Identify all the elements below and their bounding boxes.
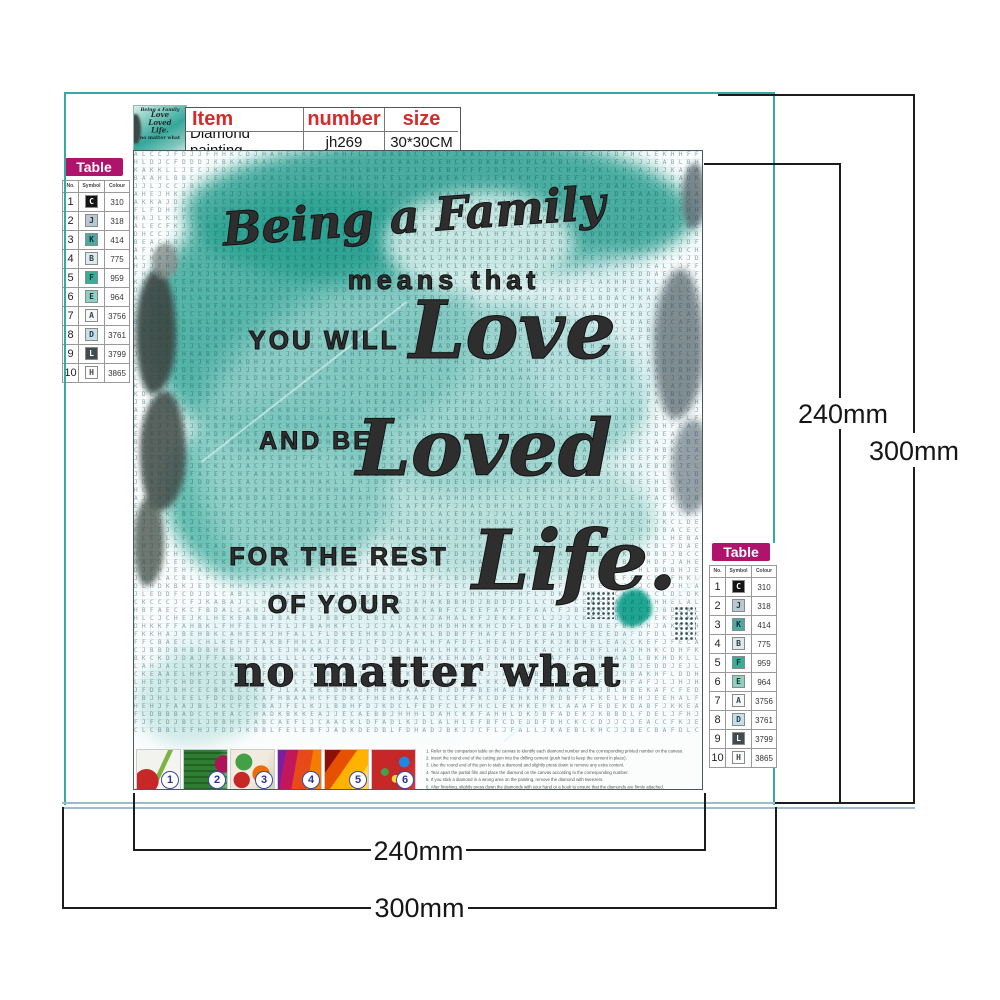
dim-label-inner-width: 240mm (371, 836, 466, 866)
quote-line-3: YOU WILL (246, 325, 402, 356)
canvas-photo: ALCCJFDJJFHHKCDJHAHELKBFLHHFLLDDKDBCECLF… (133, 150, 703, 790)
dim-line-inner-height-a (839, 163, 841, 398)
color-table-row: 8D3761 (710, 711, 777, 730)
step-thumbnail-6: 6 (371, 749, 416, 790)
color-table-row: 5F959 (710, 654, 777, 673)
color-table-row: 1C310 (710, 578, 777, 597)
symbol-chip: F (732, 656, 745, 669)
step-number-badge: 4 (302, 771, 320, 789)
color-table-row: 4B775 (710, 635, 777, 654)
instruction-line: 1. Refer to the comparison table on the … (426, 748, 703, 755)
symbol-chip: J (732, 599, 745, 612)
instruction-line: 2. Insert the round end of the cutting p… (426, 755, 703, 762)
quote-line-6: Loved (356, 403, 612, 494)
dim-line-outer-height-b (913, 467, 915, 804)
symbol-chip: H (732, 751, 745, 764)
step-thumbnail-2: 2 (183, 749, 228, 790)
quote-line-9: OF YOUR (238, 591, 432, 620)
color-table-row: 9L3799 (710, 730, 777, 749)
quote-line-4: Love (409, 283, 616, 377)
dim-ext-outer-left (62, 807, 64, 909)
color-table-row: 2J318 (710, 597, 777, 616)
instruction-line: 4. Tear apart the partial film and place… (426, 770, 703, 777)
dim-label-outer-width: 300mm (371, 893, 468, 923)
step-number-badge: 5 (349, 771, 367, 789)
step-thumbnail-5: 5 (324, 749, 369, 790)
symbol-chip: K (732, 618, 745, 631)
step-thumbnail-1: 1 (136, 749, 181, 790)
step-number-badge: 3 (255, 771, 273, 789)
quote-line-8: Life. (472, 513, 677, 609)
bottom-rule-lower (62, 807, 915, 809)
dim-ext-top (718, 94, 915, 96)
color-table-row: 6E964 (710, 673, 777, 692)
diamond-painting-spec-sheet: Being a Family Love Loved Life. no matte… (0, 0, 1000, 1000)
steps-thumbnails: 123456 (136, 749, 420, 790)
symbol-chip: L (732, 732, 745, 745)
quote-line-10: no matter what (186, 647, 670, 696)
instruction-line: 5. If you stick a diamond in a wrong are… (426, 777, 703, 784)
step-number-badge: 1 (161, 771, 179, 789)
quote-line-7: FOR THE REST (192, 543, 486, 572)
dim-ext-inner-left (133, 793, 135, 851)
color-table-row: 7A3756 (710, 692, 777, 711)
color-table-row: 10H3865 (710, 749, 777, 768)
color-table-grid: No. Symbol Colour 1C3102J3183K4144B7755F… (709, 565, 777, 768)
step-thumbnail-4: 4 (277, 749, 322, 790)
bead-cluster (674, 606, 696, 640)
symbol-chip: A (732, 694, 745, 707)
symbol-chip: E (732, 675, 745, 688)
dim-label-inner-height: 240mm (798, 399, 888, 429)
dim-line-outer-height-a (913, 94, 915, 433)
instruction-line: 6. After finishing, slightly press down … (426, 784, 703, 790)
instructions-text: 1. Refer to the comparison table on the … (426, 748, 703, 790)
color-table-row: 3K414 (710, 616, 777, 635)
dim-ext-inner-right (704, 793, 706, 851)
dim-line-inner-height-b (839, 428, 841, 804)
step-number-badge: 2 (208, 771, 226, 789)
dim-ext-right-bottom (775, 802, 915, 804)
dim-label-outer-height: 300mm (866, 436, 962, 466)
symbol-chip: D (732, 713, 745, 726)
color-table-title: Table (712, 543, 770, 561)
symbol-chip: C (732, 580, 745, 593)
dim-ext-inner-top (704, 163, 840, 165)
step-number-badge: 6 (396, 771, 414, 789)
dim-ext-outer-right (775, 807, 777, 909)
instruction-line: 3. Use the round end of the pen to stab … (426, 762, 703, 769)
symbol-chip: B (732, 637, 745, 650)
color-table-right: Table No. Symbol Colour 1C3102J3183K4144… (709, 543, 777, 768)
step-thumbnail-3: 3 (230, 749, 275, 790)
